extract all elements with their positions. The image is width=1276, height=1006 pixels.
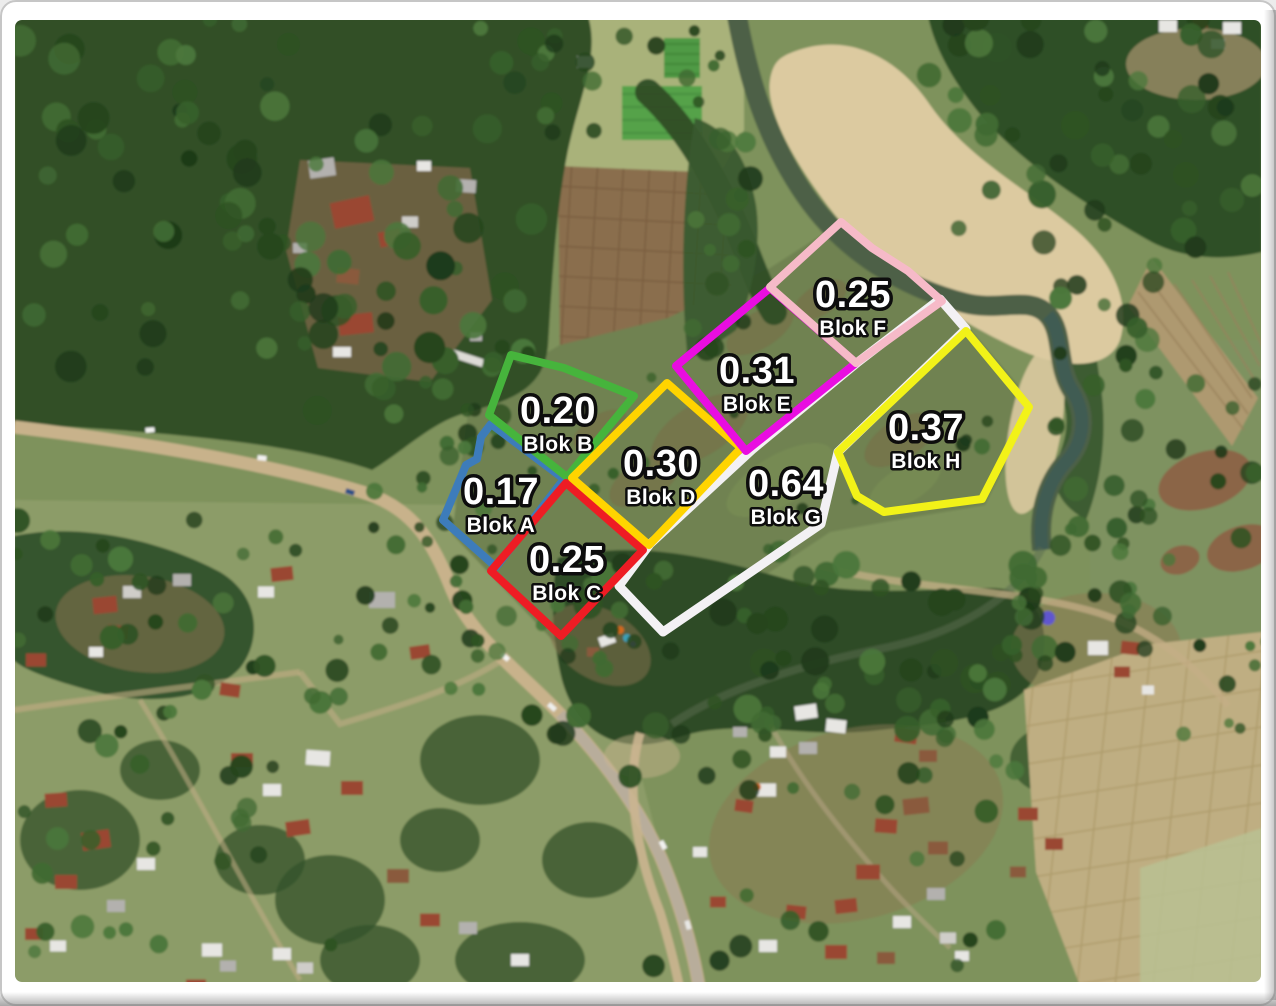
parcel-name-label-blok-f: Blok F <box>819 317 886 340</box>
parcel-area-label-blok-a: 0.17 <box>463 471 539 513</box>
parcel-area-label-blok-b: 0.20 <box>520 390 596 432</box>
parcel-area-label-blok-h: 0.37 <box>888 407 964 449</box>
parcel-name-label-blok-b: Blok B <box>523 433 593 456</box>
framed-photo: 0.17Blok A0.20Blok B0.25Blok C0.30Blok D… <box>0 0 1276 1006</box>
parcel-name-label-blok-c: Blok C <box>532 582 602 605</box>
parcel-area-label-blok-c: 0.25 <box>529 539 605 581</box>
parcel-name-label-blok-h: Blok H <box>891 450 961 473</box>
parcel-name-label-blok-e: Blok E <box>723 393 791 416</box>
parcel-name-label-blok-g: Blok G <box>751 506 822 529</box>
photo-frame-right-shadow <box>1264 10 1276 1000</box>
satellite-photo: 0.17Blok A0.20Blok B0.25Blok C0.30Blok D… <box>0 0 1276 1006</box>
parcel-name-label-blok-a: Blok A <box>467 514 536 537</box>
parcel-area-label-blok-d: 0.30 <box>623 443 699 485</box>
parcel-area-label-blok-f: 0.25 <box>815 274 891 316</box>
parcel-area-label-blok-g: 0.64 <box>748 463 824 505</box>
parcel-area-label-blok-e: 0.31 <box>719 350 795 392</box>
photo-frame-bottom-shadow <box>0 992 1276 1006</box>
parcel-name-label-blok-d: Blok D <box>626 486 696 509</box>
